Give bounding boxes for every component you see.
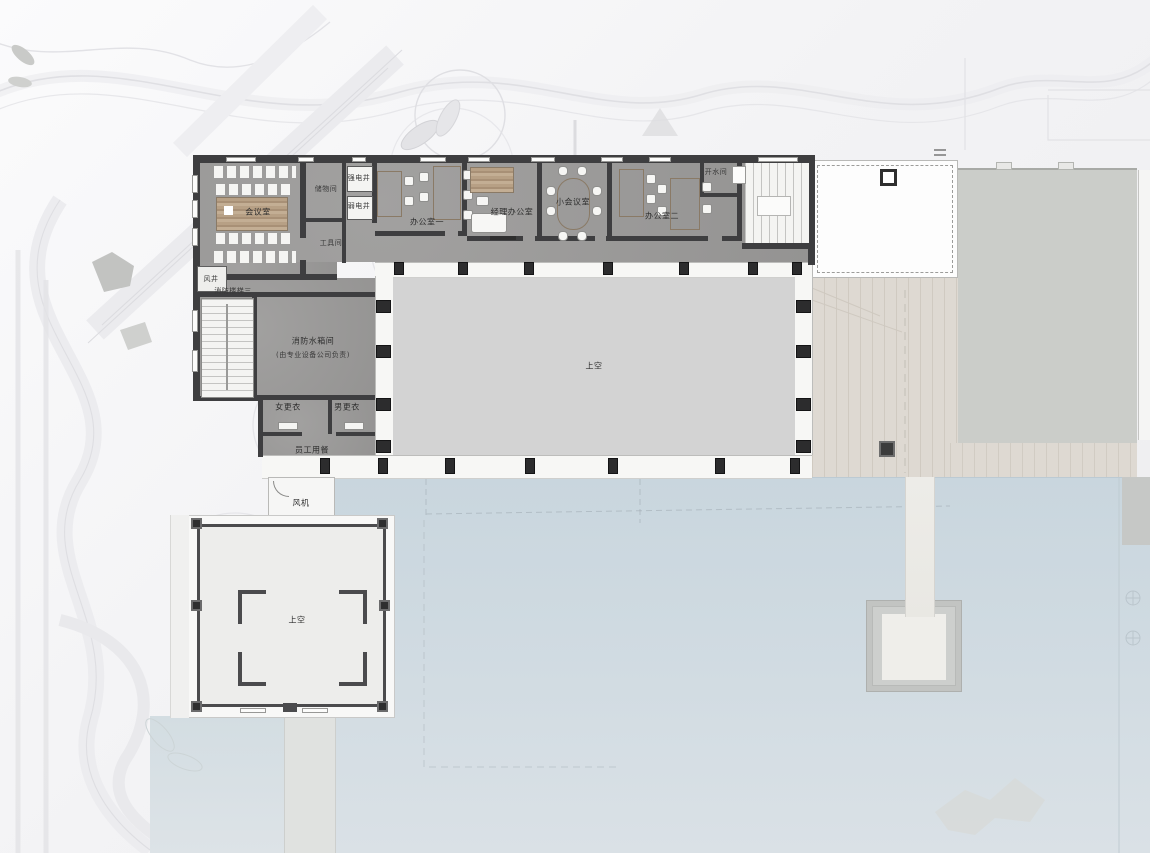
chair: [476, 196, 489, 206]
chair: [558, 166, 568, 176]
chair: [546, 206, 556, 216]
column: [376, 345, 391, 358]
manager-tv: [490, 236, 516, 240]
bench: [278, 422, 298, 430]
room-label-strong-elec: 强电井: [348, 173, 371, 183]
chair: [419, 192, 429, 202]
pier-platform-inner: [882, 614, 946, 680]
right-corner-paving: [1122, 477, 1150, 545]
wall: [607, 163, 612, 236]
column: [376, 300, 391, 313]
roof-column-marker: [880, 169, 897, 186]
window: [649, 157, 671, 162]
pavilion-column: [379, 600, 390, 611]
pavilion-column: [191, 701, 202, 712]
chair: [404, 176, 414, 186]
wall: [300, 163, 306, 238]
column: [792, 262, 802, 275]
column: [796, 440, 811, 453]
east-stairwell-landing: [757, 196, 791, 216]
right-edge-building-strip: [1138, 170, 1150, 440]
window: [240, 708, 266, 713]
column: [796, 300, 811, 313]
pier-walkway: [905, 477, 935, 617]
column: [376, 398, 391, 411]
room-label-fan-room: 风机: [293, 498, 310, 509]
window: [192, 350, 198, 372]
room-label-void-main: 上空: [586, 361, 603, 372]
terrace-deck-south-band: [950, 443, 1137, 477]
column: [790, 458, 800, 474]
pavilion-column: [377, 701, 388, 712]
wall: [306, 218, 346, 222]
column: [525, 458, 535, 474]
roof-canopy-outline: [812, 160, 958, 278]
north-wall: [193, 155, 815, 163]
pavilion-west-walkway: [170, 515, 189, 718]
room-label-office-2: 办公室二: [645, 211, 679, 222]
pavilion-l-wall: [363, 652, 367, 686]
meeting-room-chair-row: [216, 233, 290, 244]
chair: [577, 166, 587, 176]
lake-water: [335, 477, 1150, 853]
chair: [702, 204, 712, 214]
pavilion-column: [191, 600, 202, 611]
wall: [262, 432, 302, 436]
chair: [592, 186, 602, 196]
lake-bridge-walkway: [284, 716, 336, 853]
terrace-column: [879, 441, 895, 457]
column: [394, 262, 404, 275]
pavilion-column: [377, 518, 388, 529]
pavilion-l-wall: [238, 682, 266, 686]
wall: [336, 432, 375, 436]
pavilion-l-wall: [238, 590, 242, 624]
column: [603, 262, 613, 275]
room-label-weak-elec: 弱电井: [348, 201, 371, 211]
meeting-room-chair-row: [216, 184, 290, 195]
column: [378, 458, 388, 474]
window: [531, 157, 555, 162]
adjacent-building-notch: [1058, 162, 1074, 170]
window: [601, 157, 623, 162]
room-label-hot-water: 开水间: [705, 167, 728, 177]
column: [679, 262, 689, 275]
chair: [558, 231, 568, 241]
room-label-fire-water-tank-note: (由专业设备公司负责): [276, 350, 350, 360]
wall: [458, 231, 467, 236]
room-label-fire-water-tank: 消防水箱间: [292, 336, 335, 347]
window: [192, 228, 198, 246]
pavilion-l-wall: [363, 590, 367, 624]
window: [226, 157, 256, 162]
column: [320, 458, 330, 474]
room-label-wind-shaft: 风井: [204, 274, 219, 284]
window: [302, 708, 328, 713]
pavilion-l-wall: [339, 682, 367, 686]
bench: [344, 422, 364, 430]
column: [524, 262, 534, 275]
room-label-women-changing: 女更衣: [275, 402, 301, 413]
window: [192, 200, 198, 218]
office1-desk: [433, 166, 461, 220]
room-label-fire-stair-3: 消防楼梯三: [214, 286, 252, 296]
void-north-colonnade: [375, 262, 812, 278]
room-label-void-pavilion: 上空: [289, 615, 306, 626]
window: [192, 175, 198, 193]
wall: [722, 236, 742, 241]
fire-stair-3-divider: [226, 304, 228, 390]
room-label-staff-dining: 员工用餐: [295, 445, 329, 456]
meeting-room-chair-row: [214, 251, 296, 263]
wall: [252, 395, 375, 400]
column: [715, 458, 725, 474]
pavilion-l-wall: [238, 652, 242, 686]
column: [608, 458, 618, 474]
pavilion-door-mark: [283, 703, 297, 712]
pavilion-l-wall: [238, 590, 266, 594]
wall: [700, 193, 742, 197]
floor-plan-canvas: 会议室 储物间 强电井 弱电井 工具间 办公室一 经理办公室 小会议室 办公室二…: [0, 0, 1150, 853]
column: [458, 262, 468, 275]
wall: [375, 231, 445, 236]
chair: [577, 231, 587, 241]
pavilion-column: [191, 518, 202, 529]
column: [796, 345, 811, 358]
chair: [419, 172, 429, 182]
south-colonnade: [262, 455, 812, 479]
adjacent-building-notch: [996, 162, 1012, 170]
column: [748, 262, 758, 275]
office2-table: [670, 178, 700, 230]
chair: [646, 174, 656, 184]
west-wall-mid: [193, 280, 200, 400]
chair: [657, 184, 667, 194]
office2-table: [619, 169, 644, 217]
wall: [742, 243, 812, 249]
adjacent-building-block: [958, 168, 1137, 443]
wall: [612, 236, 708, 241]
chair: [702, 182, 712, 192]
window: [192, 310, 198, 332]
wall: [537, 163, 542, 236]
room-label-small-meeting: 小会议室: [556, 197, 590, 208]
column: [445, 458, 455, 474]
table-paper: [224, 206, 233, 215]
wall: [300, 260, 306, 280]
meeting-room-chair-row: [214, 166, 296, 178]
column: [796, 398, 811, 411]
room-label-meeting-room: 会议室: [245, 207, 271, 218]
column: [376, 440, 391, 453]
window: [352, 157, 366, 162]
door: [732, 166, 746, 184]
room-label-office-1: 办公室一: [410, 217, 444, 228]
wall: [328, 400, 332, 434]
room-label-manager-office: 经理办公室: [491, 207, 534, 218]
room-label-storage: 储物间: [315, 184, 338, 194]
chair: [546, 186, 556, 196]
room-label-tool-room: 工具间: [320, 238, 343, 248]
window: [298, 157, 314, 162]
room-label-men-changing: 男更衣: [334, 402, 360, 413]
chair: [404, 196, 414, 206]
window: [468, 157, 490, 162]
window: [758, 157, 798, 162]
west-wall-lower: [258, 400, 263, 457]
office1-desk: [377, 171, 402, 217]
chair: [592, 206, 602, 216]
manager-desk: [470, 167, 514, 193]
chair: [646, 194, 656, 204]
wall: [342, 163, 346, 263]
window: [420, 157, 446, 162]
